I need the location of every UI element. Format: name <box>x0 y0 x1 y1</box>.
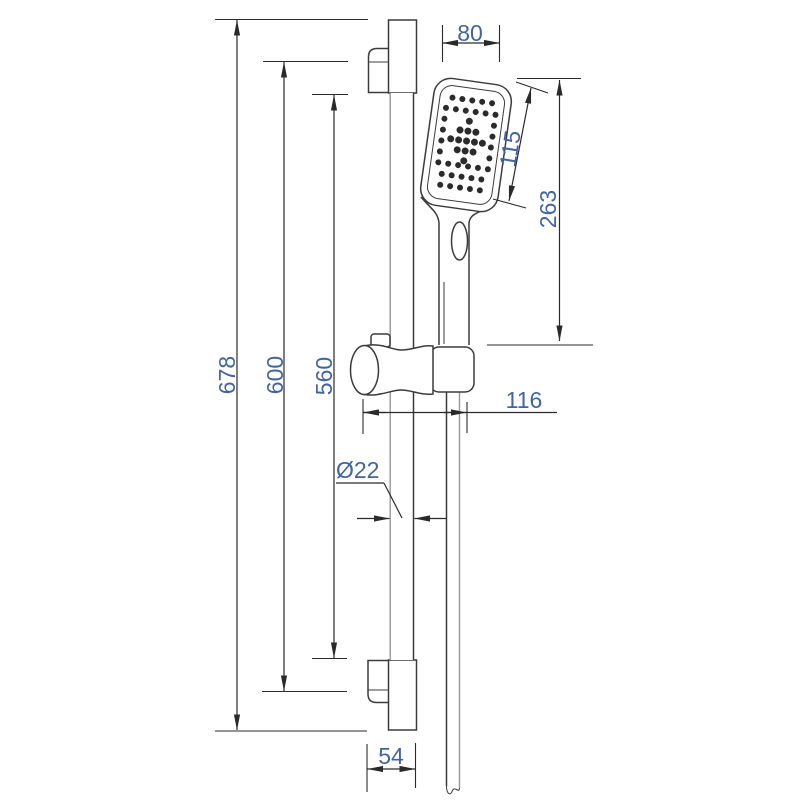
dim-116-label: 116 <box>506 387 543 413</box>
dim-80-label: 80 <box>457 20 483 46</box>
technical-drawing-page: 678 600 560 80 115 <box>0 0 800 800</box>
dim-bar-span: 560 <box>311 95 348 659</box>
dim-115-label: 115 <box>494 129 525 169</box>
hose-break-symbol <box>447 786 460 794</box>
dim-head-width: 80 <box>443 20 500 62</box>
handle-mode-button <box>452 222 468 260</box>
shower-hose <box>447 392 460 794</box>
rail-top-cap <box>389 20 417 93</box>
dim-54-label: 54 <box>378 743 404 769</box>
holder-clamp <box>430 347 474 392</box>
hand-shower-handle <box>421 197 489 345</box>
dim-diameter-label: Ø22 <box>336 457 379 483</box>
dim-560-label: 560 <box>311 357 337 395</box>
rail-bottom-cap <box>389 660 417 730</box>
dim-263-label: 263 <box>535 190 561 228</box>
dim-foot-width: 54 <box>367 743 416 792</box>
dim-678-label: 678 <box>214 356 240 394</box>
wall-bracket-top <box>369 49 390 93</box>
wall-bracket-bottom <box>368 661 390 703</box>
dim-600-label: 600 <box>262 356 288 394</box>
shower-slide-bar-drawing: 678 600 560 80 115 <box>0 0 800 800</box>
holder-end-cap <box>351 346 379 395</box>
dim-total-height: 678 <box>214 20 368 732</box>
